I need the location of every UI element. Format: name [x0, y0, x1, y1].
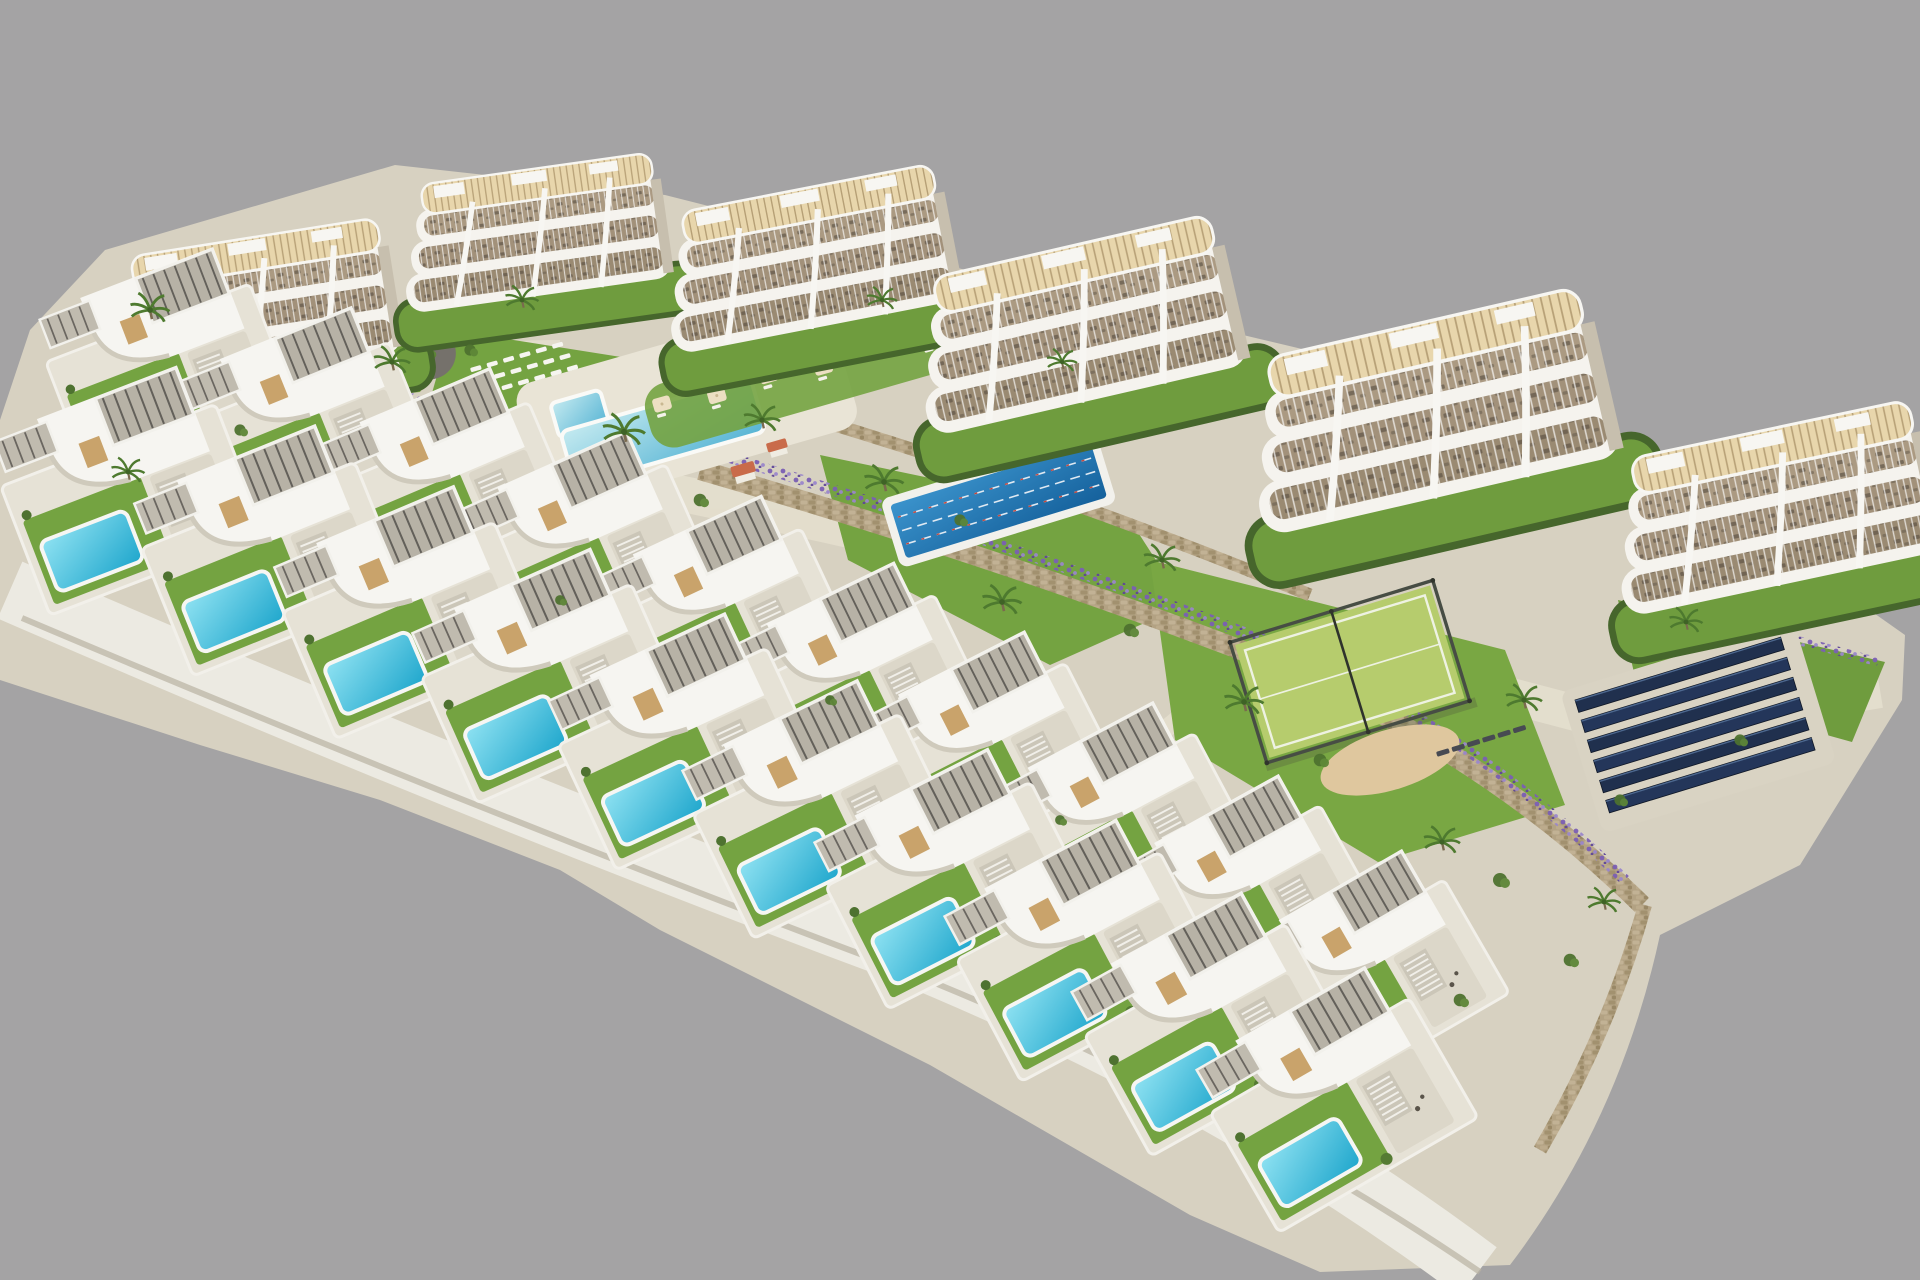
render-stage: [0, 0, 1920, 1280]
site-render: [0, 0, 1920, 1280]
